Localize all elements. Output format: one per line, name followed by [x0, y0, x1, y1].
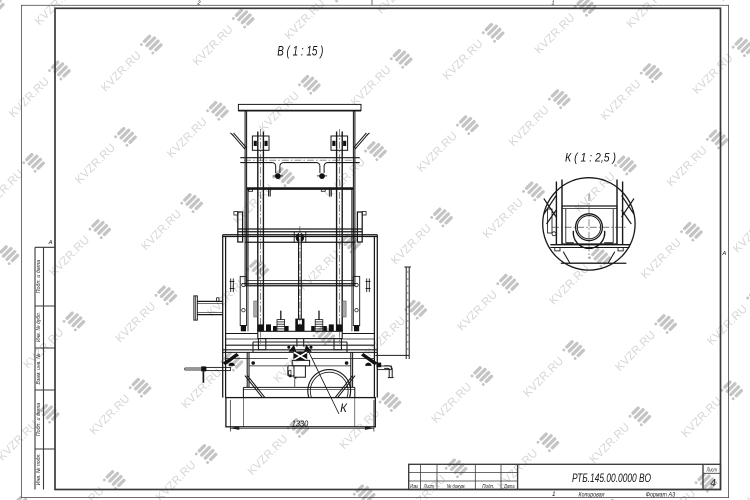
svg-text:1330: 1330 — [292, 419, 309, 429]
svg-text:К ( 1 : 2,5 ): К ( 1 : 2,5 ) — [565, 153, 616, 165]
svg-text:1: 1 — [552, 491, 556, 498]
svg-text:Изм.: Изм. — [410, 484, 419, 490]
svg-text:Дата: Дата — [503, 484, 515, 490]
svg-text:А: А — [721, 251, 726, 257]
svg-text:В ( 1 : 15 ): В ( 1 : 15 ) — [277, 42, 323, 58]
svg-text:Взам. инв. №: Взам. инв. № — [36, 354, 42, 385]
svg-text:Формат А3: Формат А3 — [646, 491, 676, 498]
svg-text:4: 4 — [710, 478, 716, 489]
svg-text:№ докум.: № докум. — [447, 484, 466, 490]
svg-text:Инв. № дубл.: Инв. № дубл. — [36, 312, 42, 342]
svg-text:Лист: Лист — [706, 468, 717, 474]
svg-text:Инв. № подл.: Инв. № подл. — [36, 453, 42, 485]
svg-text:А: А — [48, 240, 53, 246]
svg-text:Копировал: Копировал — [579, 491, 605, 498]
svg-text:Подп.: Подп. — [482, 484, 494, 490]
svg-text:1: 1 — [551, 1, 554, 7]
svg-text:РТБ.145.00.0000 ВО: РТБ.145.00.0000 ВО — [572, 471, 651, 485]
svg-text:Подп. и дата: Подп. и дата — [36, 402, 42, 436]
svg-text:Лист: Лист — [423, 484, 434, 490]
svg-text:Подп. и дата: Подп. и дата — [36, 259, 42, 293]
